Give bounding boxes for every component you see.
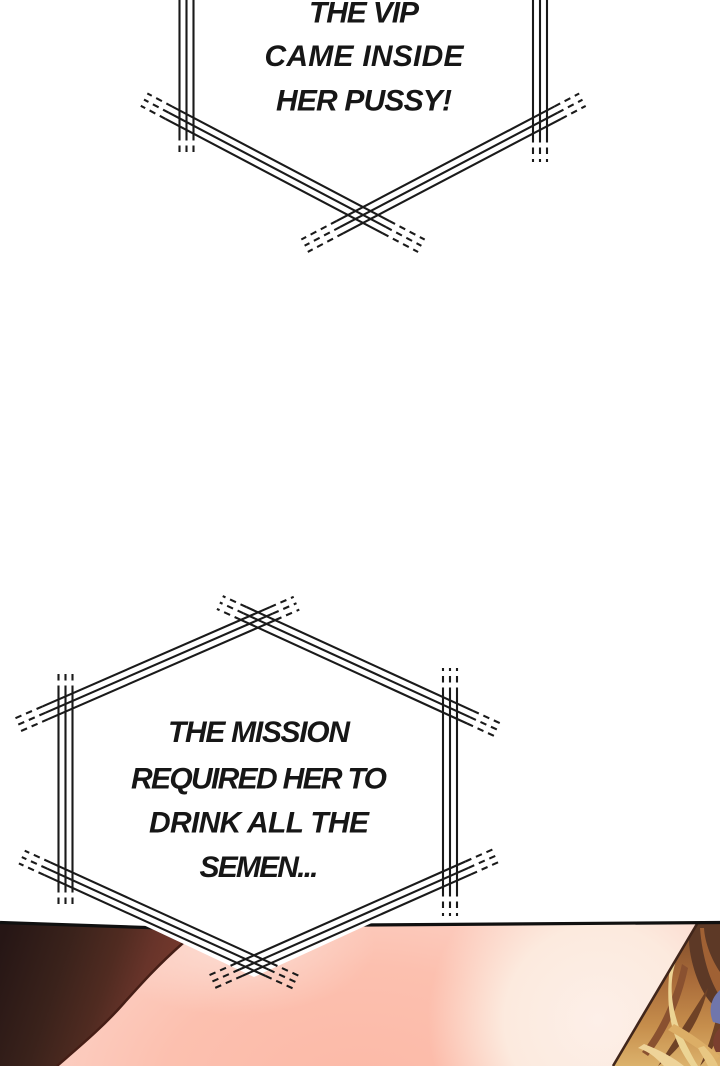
svg-text:SEMEN...: SEMEN... — [200, 851, 319, 884]
svg-text:THE MISSION: THE MISSION — [168, 716, 351, 749]
svg-text:REQUIRED HER TO: REQUIRED HER TO — [131, 763, 387, 796]
svg-text:THE VIP: THE VIP — [309, 0, 420, 30]
svg-text:DRINK ALL THE: DRINK ALL THE — [149, 807, 370, 840]
svg-text:CAME INSIDE: CAME INSIDE — [265, 40, 465, 73]
svg-text:HER PUSSY!: HER PUSSY! — [276, 85, 452, 118]
